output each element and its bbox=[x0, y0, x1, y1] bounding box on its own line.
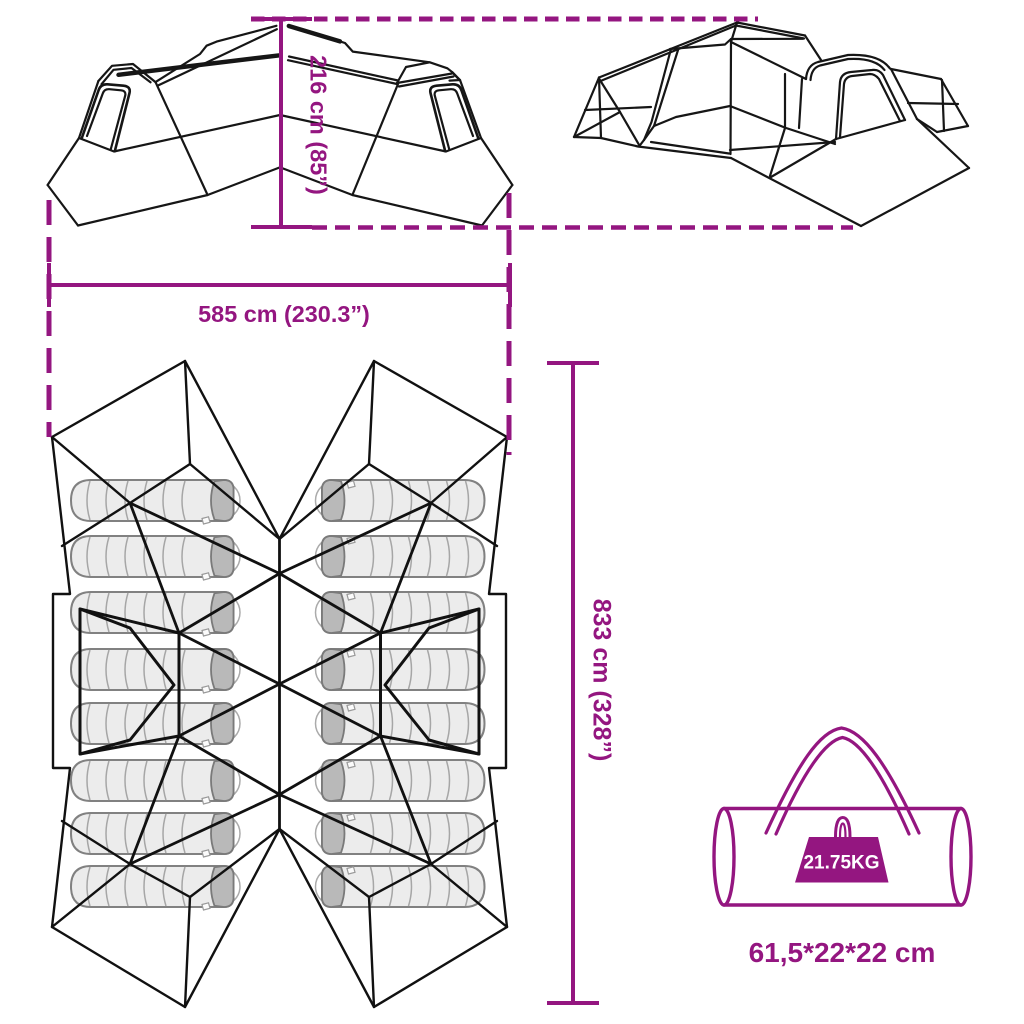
svg-text:21.75KG: 21.75KG bbox=[803, 853, 879, 874]
svg-text:833 cm (328”): 833 cm (328”) bbox=[588, 599, 616, 762]
svg-text:585 cm (230.3”): 585 cm (230.3”) bbox=[198, 301, 370, 327]
svg-text:216 cm (85”): 216 cm (85”) bbox=[306, 55, 332, 195]
svg-text:61,5*22*22 cm: 61,5*22*22 cm bbox=[749, 937, 936, 968]
